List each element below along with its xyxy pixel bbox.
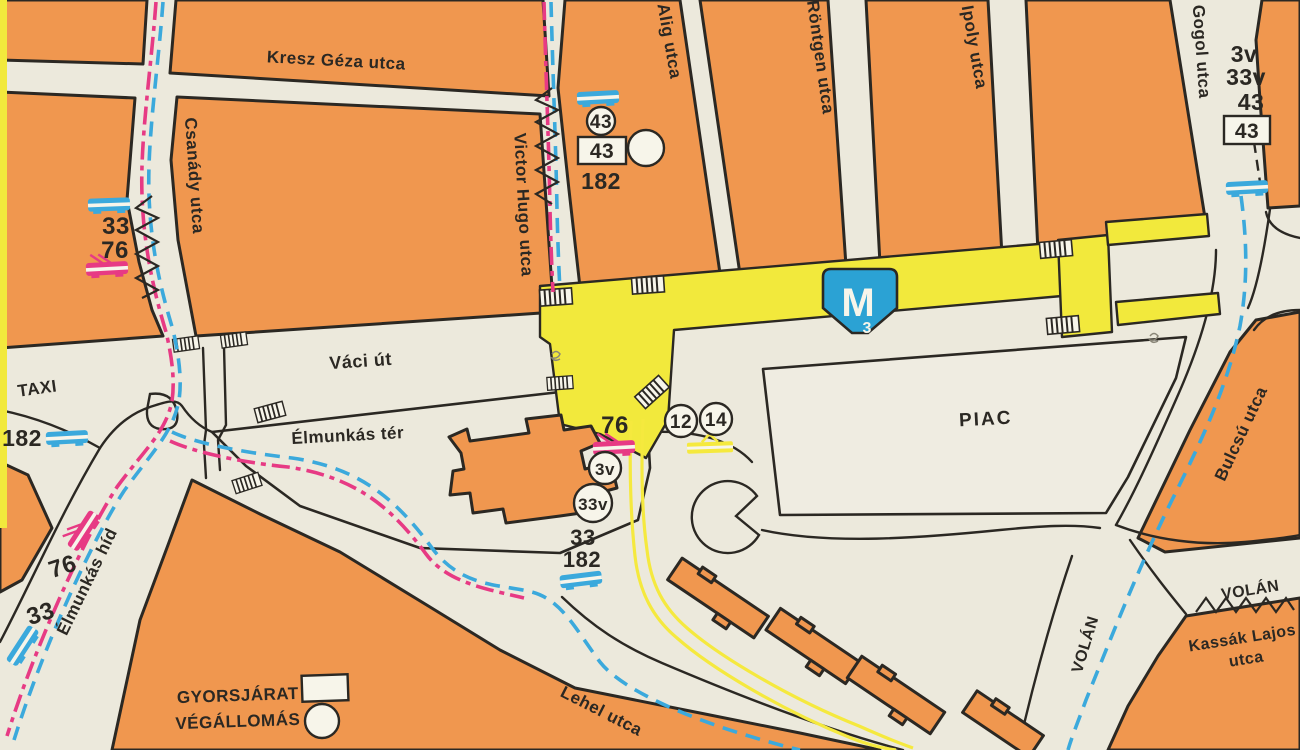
apartment-slab	[663, 555, 770, 645]
city-block	[171, 97, 553, 336]
city-block	[0, 0, 147, 64]
route-number-33: 33	[23, 597, 58, 631]
city-block	[1026, 0, 1206, 252]
station-entrance-hatch	[547, 376, 573, 391]
route-circle-14-label: 14	[705, 410, 727, 431]
street-label-gogol: Gogol utca	[1189, 4, 1214, 99]
area-label-piac: PIAC	[958, 408, 1012, 432]
metro-m3-badge: M 3	[823, 269, 897, 337]
route-circle-3v-label: 3v	[595, 460, 615, 479]
city-block	[0, 462, 52, 592]
station-entrance-hatch	[1039, 240, 1072, 259]
station-entrance-hatch	[1046, 316, 1079, 335]
route-circle-33v-label: 33v	[578, 495, 608, 514]
metro-badge-letter: M	[841, 281, 874, 325]
route-circle-12-label: 12	[670, 412, 692, 433]
map-canvas: M 3 43 43 182 12 14 76 3v 33v 33 182 33 …	[0, 0, 1300, 750]
metro-badge-line-number: 3	[863, 320, 872, 337]
route-box-43-label: 43	[590, 140, 614, 163]
tram-stop-icon	[687, 433, 734, 454]
terminus-circle-marker	[628, 130, 664, 166]
bus-stop-icon	[46, 430, 89, 448]
route-number-182: 182	[2, 425, 42, 451]
terminus-symbol	[305, 704, 339, 738]
bus-stop-icon	[6, 625, 42, 669]
route-number-33v: 33v	[1226, 64, 1266, 90]
route-circle-43-label: 43	[590, 112, 612, 133]
station-entrance-hatch	[254, 401, 286, 422]
bus-route-line	[551, 2, 560, 290]
route-number-76: 76	[45, 550, 80, 584]
route-number-76: 76	[601, 412, 629, 439]
area-label-taxi: TAXI	[16, 376, 58, 400]
route-number-76: 76	[101, 237, 129, 264]
city-block-kassak	[1108, 598, 1300, 750]
station-entrance-hatch	[220, 332, 247, 348]
area-label-volan-south: VOLÁN	[1067, 614, 1102, 675]
lane-divider-dashes	[1254, 142, 1260, 182]
station-entrance-hatch	[232, 472, 262, 493]
transit-map: M 3 43 43 182 12 14 76 3v 33v 33 182 33 …	[0, 0, 1300, 750]
station-entrance-hatch	[539, 288, 572, 306]
street-label-vaci-ut: Váci út	[329, 349, 393, 373]
station-entrance-hatch	[631, 276, 664, 294]
route-number-182: 182	[581, 168, 621, 194]
route-number-182: 182	[563, 547, 601, 572]
area-label-volan-east: VOLÁN	[1220, 576, 1281, 604]
apartment-slab	[963, 688, 1046, 750]
route-box-43-label: 43	[1235, 120, 1259, 143]
city-block	[170, 0, 549, 96]
express-line-symbol	[302, 674, 349, 702]
bus-stop-icon	[1226, 180, 1269, 198]
city-block	[0, 92, 163, 348]
bus-stop-icon	[559, 570, 603, 590]
route-number-33: 33	[102, 213, 130, 240]
route-number-43: 43	[1238, 89, 1265, 115]
